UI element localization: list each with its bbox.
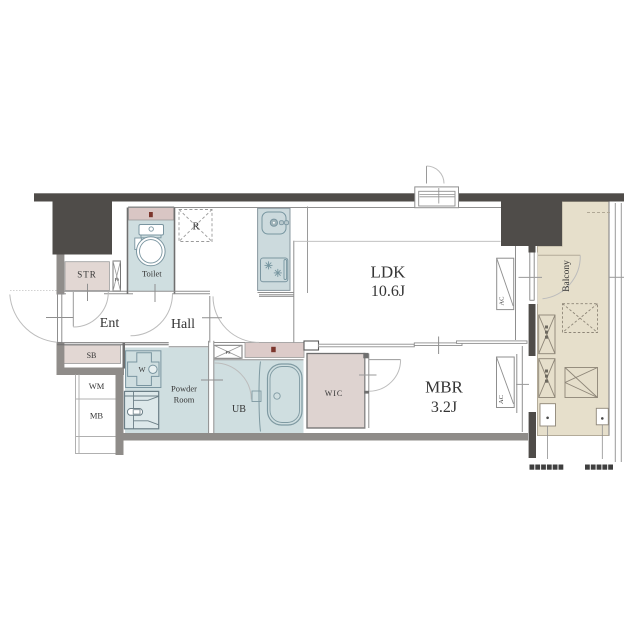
svg-text:Hall: Hall bbox=[171, 317, 195, 332]
svg-text:Toilet: Toilet bbox=[142, 269, 162, 279]
svg-text:Room: Room bbox=[174, 395, 195, 405]
svg-text:LDK: LDK bbox=[371, 263, 407, 282]
svg-text:PS: PS bbox=[115, 277, 119, 282]
svg-text:MB: MB bbox=[90, 411, 104, 421]
svg-text:STR: STR bbox=[77, 270, 97, 280]
svg-text:MBR: MBR bbox=[425, 378, 463, 397]
svg-text:3.2J: 3.2J bbox=[431, 399, 457, 416]
svg-text:Powder: Powder bbox=[171, 384, 197, 394]
svg-text:Ent: Ent bbox=[100, 316, 120, 331]
svg-text:10.6J: 10.6J bbox=[371, 283, 405, 300]
svg-text:WIC: WIC bbox=[325, 389, 344, 398]
svg-text:UB: UB bbox=[232, 404, 246, 415]
svg-text:AC: AC bbox=[498, 296, 505, 305]
svg-text:Balcony: Balcony bbox=[562, 260, 572, 292]
svg-text:W: W bbox=[138, 365, 146, 374]
svg-text:SB: SB bbox=[87, 351, 97, 360]
svg-text:PS: PS bbox=[225, 350, 231, 355]
svg-text:AC: AC bbox=[498, 395, 505, 404]
svg-text:WM: WM bbox=[89, 381, 105, 391]
svg-text:R: R bbox=[192, 222, 199, 233]
